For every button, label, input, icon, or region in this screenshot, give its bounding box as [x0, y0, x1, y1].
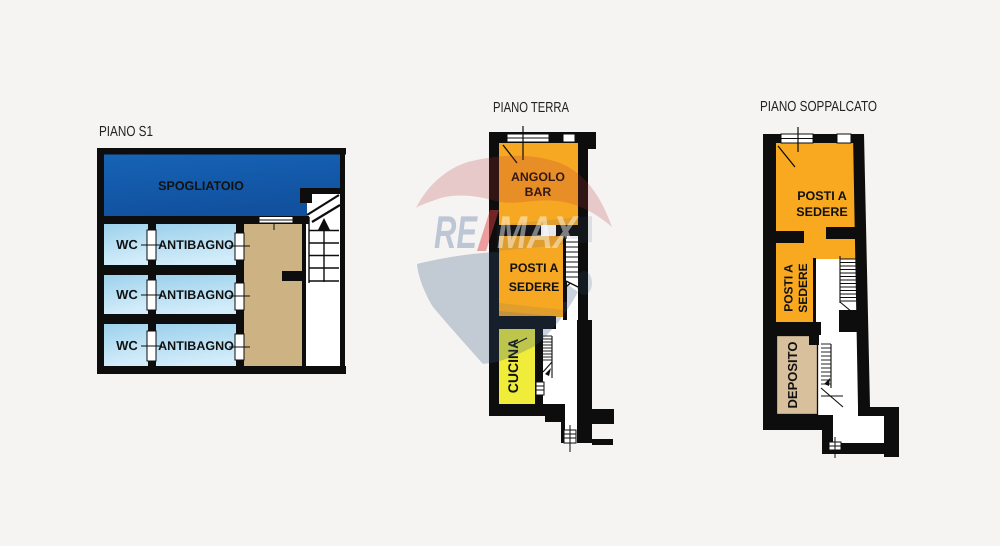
svg-text:ANTIBAGNO: ANTIBAGNO: [158, 288, 234, 302]
svg-text:RE: RE: [434, 206, 478, 258]
svg-text:POSTI A: POSTI A: [797, 189, 847, 203]
svg-text:WC: WC: [116, 338, 138, 353]
svg-text:WC: WC: [116, 237, 138, 252]
svg-text:PIANO S1: PIANO S1: [99, 124, 153, 140]
svg-text:SPOGLIATOIO: SPOGLIATOIO: [158, 179, 244, 193]
svg-text:PIANO TERRA: PIANO TERRA: [493, 100, 569, 116]
svg-text:POSTI A: POSTI A: [782, 264, 796, 312]
svg-text:ANTIBAGNO: ANTIBAGNO: [158, 339, 234, 353]
svg-text:SEDERE: SEDERE: [509, 280, 560, 294]
svg-text:WC: WC: [116, 287, 138, 302]
svg-text:SEDERE: SEDERE: [796, 263, 810, 312]
svg-text:POSTI A: POSTI A: [510, 261, 559, 275]
svg-text:ANTIBAGNO: ANTIBAGNO: [158, 238, 234, 252]
svg-text:PIANO SOPPALCATO: PIANO SOPPALCATO: [760, 99, 877, 115]
svg-text:DEPOSITO: DEPOSITO: [785, 342, 800, 409]
svg-text:SEDERE: SEDERE: [796, 205, 847, 219]
